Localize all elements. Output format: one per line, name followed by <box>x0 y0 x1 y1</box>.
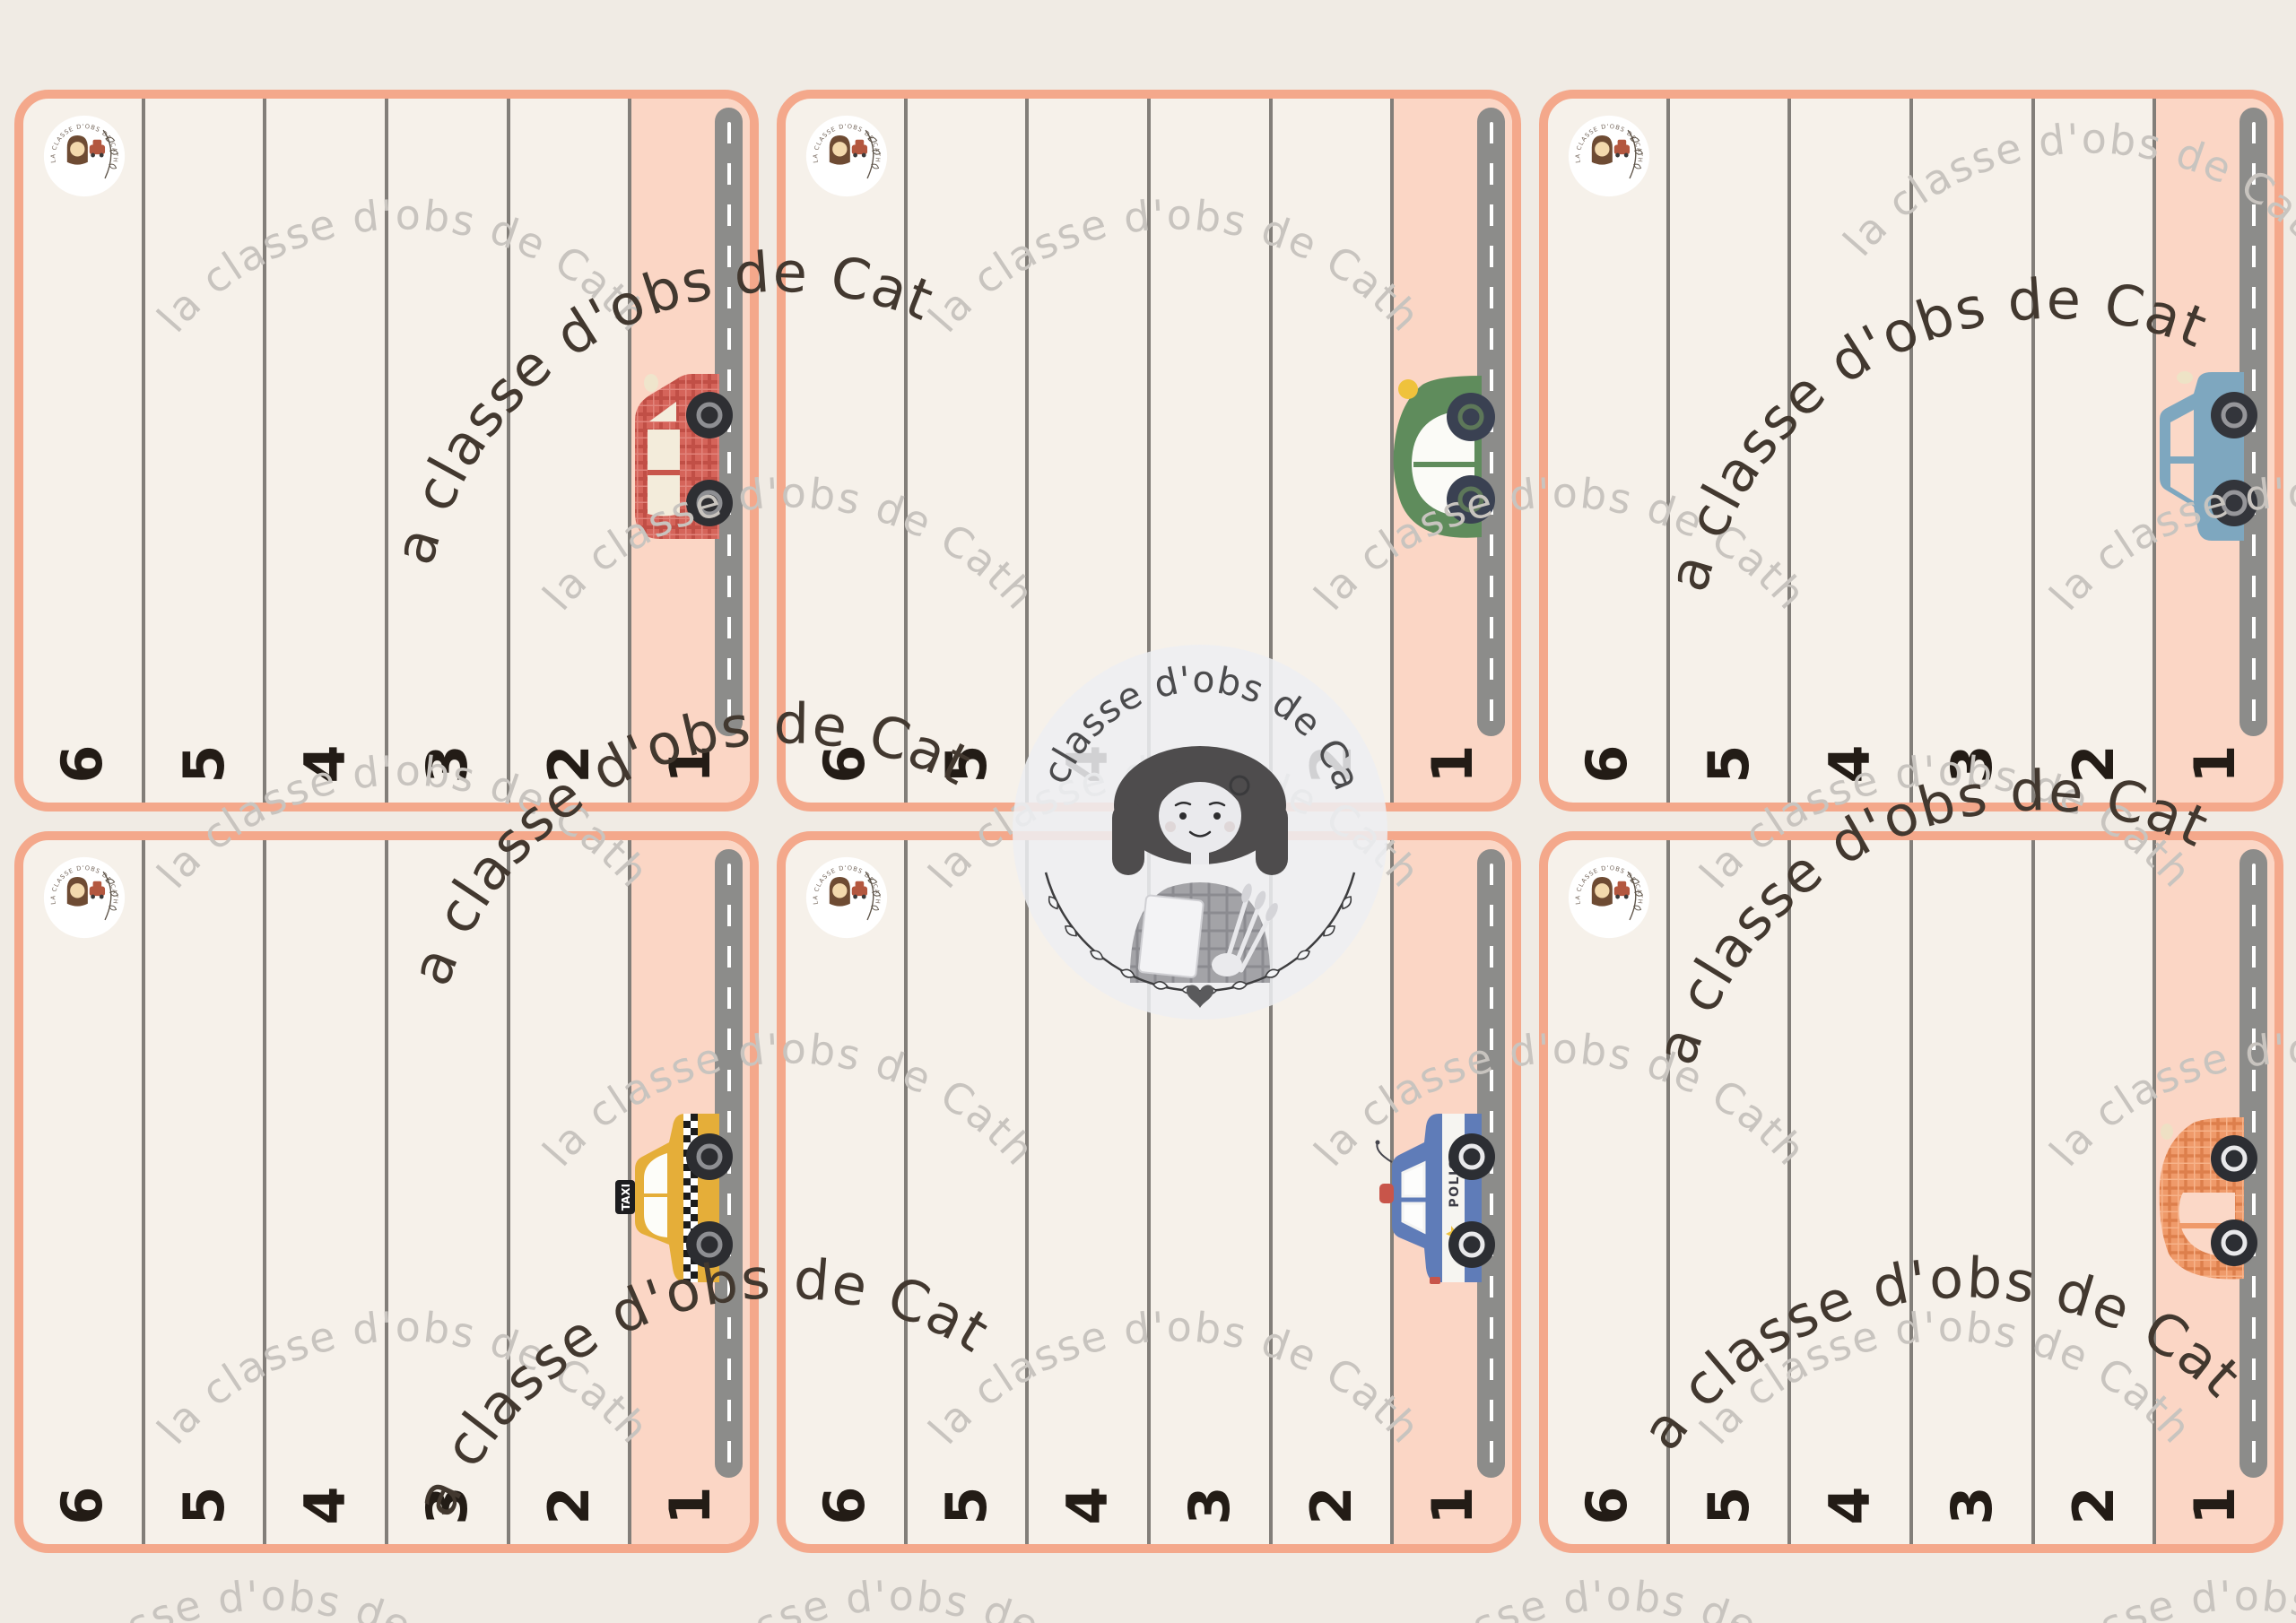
lane-number: 5 <box>177 744 232 783</box>
lane-number: 3 <box>1182 1486 1238 1524</box>
lane-4: 4 <box>1025 840 1147 1544</box>
svg-text:la classe d'obs de Cath: la classe d'obs de Cath <box>641 1571 1152 1623</box>
lane-3: 3 <box>1147 840 1269 1544</box>
svg-text:la classe d'obs de Cath: la classe d'obs de Cath <box>13 1571 525 1623</box>
svg-text:la classe d'obs de Cath: la classe d'obs de Cath <box>1987 1571 2296 1623</box>
card-grid: 6 5 4 3 2 1 <box>14 90 2283 1553</box>
card-orange-car: 6 5 4 3 2 1 <box>1539 831 2283 1553</box>
lane-number: 3 <box>420 1486 475 1524</box>
corner-logo-stamp <box>1566 855 1652 941</box>
lane-6: 6 <box>1548 840 1666 1544</box>
lane-6: 6 <box>1548 99 1666 803</box>
lane-5: 5 <box>142 840 264 1544</box>
card-green-car: 6 5 4 3 2 1 <box>777 90 1521 811</box>
lane-number: 5 <box>1701 744 1757 783</box>
yellow-taxi-icon: TAXI <box>604 1105 739 1293</box>
corner-logo-stamp <box>41 855 127 941</box>
watermark-text: la classe d'obs de Cath <box>1987 1571 2296 1623</box>
lane-number: 3 <box>1944 1486 2000 1524</box>
lane-5: 5 <box>1666 840 1788 1544</box>
lane-number: 4 <box>1822 744 1878 783</box>
corner-logo-stamp <box>1566 113 1652 199</box>
lane-number: 2 <box>542 744 597 783</box>
corner-logo-stamp <box>41 113 127 199</box>
lane-6: 6 <box>786 99 904 803</box>
card-blue-car: 6 5 4 3 2 1 <box>1539 90 2283 811</box>
lane-5: 5 <box>904 840 1026 1544</box>
lane-number: 6 <box>817 744 873 783</box>
red-plaid-car-icon <box>604 363 739 551</box>
card-red-plaid-car: 6 5 4 3 2 1 <box>14 90 759 811</box>
lane-number: 2 <box>1304 1486 1360 1524</box>
lane-number: 6 <box>55 744 110 783</box>
lane-4: 4 <box>1025 99 1147 803</box>
lane-number: 2 <box>2066 1486 2122 1524</box>
lane-3: 3 <box>1147 99 1269 803</box>
lane-number: 1 <box>2187 1486 2243 1524</box>
lane-number: 5 <box>939 1486 995 1524</box>
lane-number: 4 <box>1822 1486 1878 1524</box>
lane-4: 4 <box>1787 840 1909 1544</box>
lane-number: 6 <box>817 1486 873 1524</box>
lane-3: 3 <box>385 99 507 803</box>
printable-game-sheet: LA CLASSE D'OBS DE CATH 6 5 4 <box>0 0 2296 1623</box>
police-car-icon: POLICE <box>1367 1105 1501 1293</box>
card-yellow-taxi: 6 5 4 3 2 1 <box>14 831 759 1553</box>
lane-number: 4 <box>1060 1486 1116 1524</box>
watermark-text: la classe d'obs de Cath <box>13 1571 525 1623</box>
lane-6: 6 <box>23 840 142 1544</box>
lane-6: 6 <box>786 840 904 1544</box>
lane-number: 1 <box>1425 1486 1481 1524</box>
lane-5: 5 <box>142 99 264 803</box>
lane-4: 4 <box>263 99 385 803</box>
lane-3: 3 <box>1909 99 2031 803</box>
lane-number: 6 <box>1579 1486 1635 1524</box>
svg-text:la classe d'obs de Cath: la classe d'obs de Cath <box>1359 1571 1870 1623</box>
lane-number: 1 <box>2187 744 2243 783</box>
lane-number: 3 <box>1182 744 1238 783</box>
lane-5: 5 <box>904 99 1026 803</box>
orange-car-icon <box>2129 1105 2264 1293</box>
taxi-sign-label: TAXI <box>620 1184 632 1211</box>
lane-number: 3 <box>420 744 475 783</box>
blue-car-icon <box>2129 363 2264 551</box>
lane-number: 5 <box>177 1486 232 1524</box>
lane-number: 6 <box>55 1486 110 1524</box>
lane-6: 6 <box>23 99 142 803</box>
lane-number: 4 <box>298 1486 353 1524</box>
lane-number: 1 <box>1425 744 1481 783</box>
green-car-icon <box>1367 363 1501 551</box>
lane-number: 4 <box>298 744 353 783</box>
watermark-text: la classe d'obs de Cath <box>641 1571 1152 1623</box>
card-police-car: 6 5 4 3 2 1 POLICE <box>777 831 1521 1553</box>
lane-3: 3 <box>385 840 507 1544</box>
lane-number: 5 <box>939 744 995 783</box>
lane-number: 2 <box>542 1486 597 1524</box>
lane-number: 1 <box>663 1486 718 1524</box>
lane-number: 5 <box>1701 1486 1757 1524</box>
lane-3: 3 <box>1909 840 2031 1544</box>
lane-number: 2 <box>2066 744 2122 783</box>
lane-4: 4 <box>1787 99 1909 803</box>
corner-logo-stamp <box>804 855 890 941</box>
lane-5: 5 <box>1666 99 1788 803</box>
watermark-text: la classe d'obs de Cath <box>1359 1571 1870 1623</box>
lane-number: 2 <box>1304 744 1360 783</box>
lane-number: 1 <box>663 744 718 783</box>
lane-4: 4 <box>263 840 385 1544</box>
corner-logo-stamp <box>804 113 890 199</box>
lane-number: 6 <box>1579 744 1635 783</box>
lane-number: 4 <box>1060 744 1116 783</box>
lane-number: 3 <box>1944 744 2000 783</box>
